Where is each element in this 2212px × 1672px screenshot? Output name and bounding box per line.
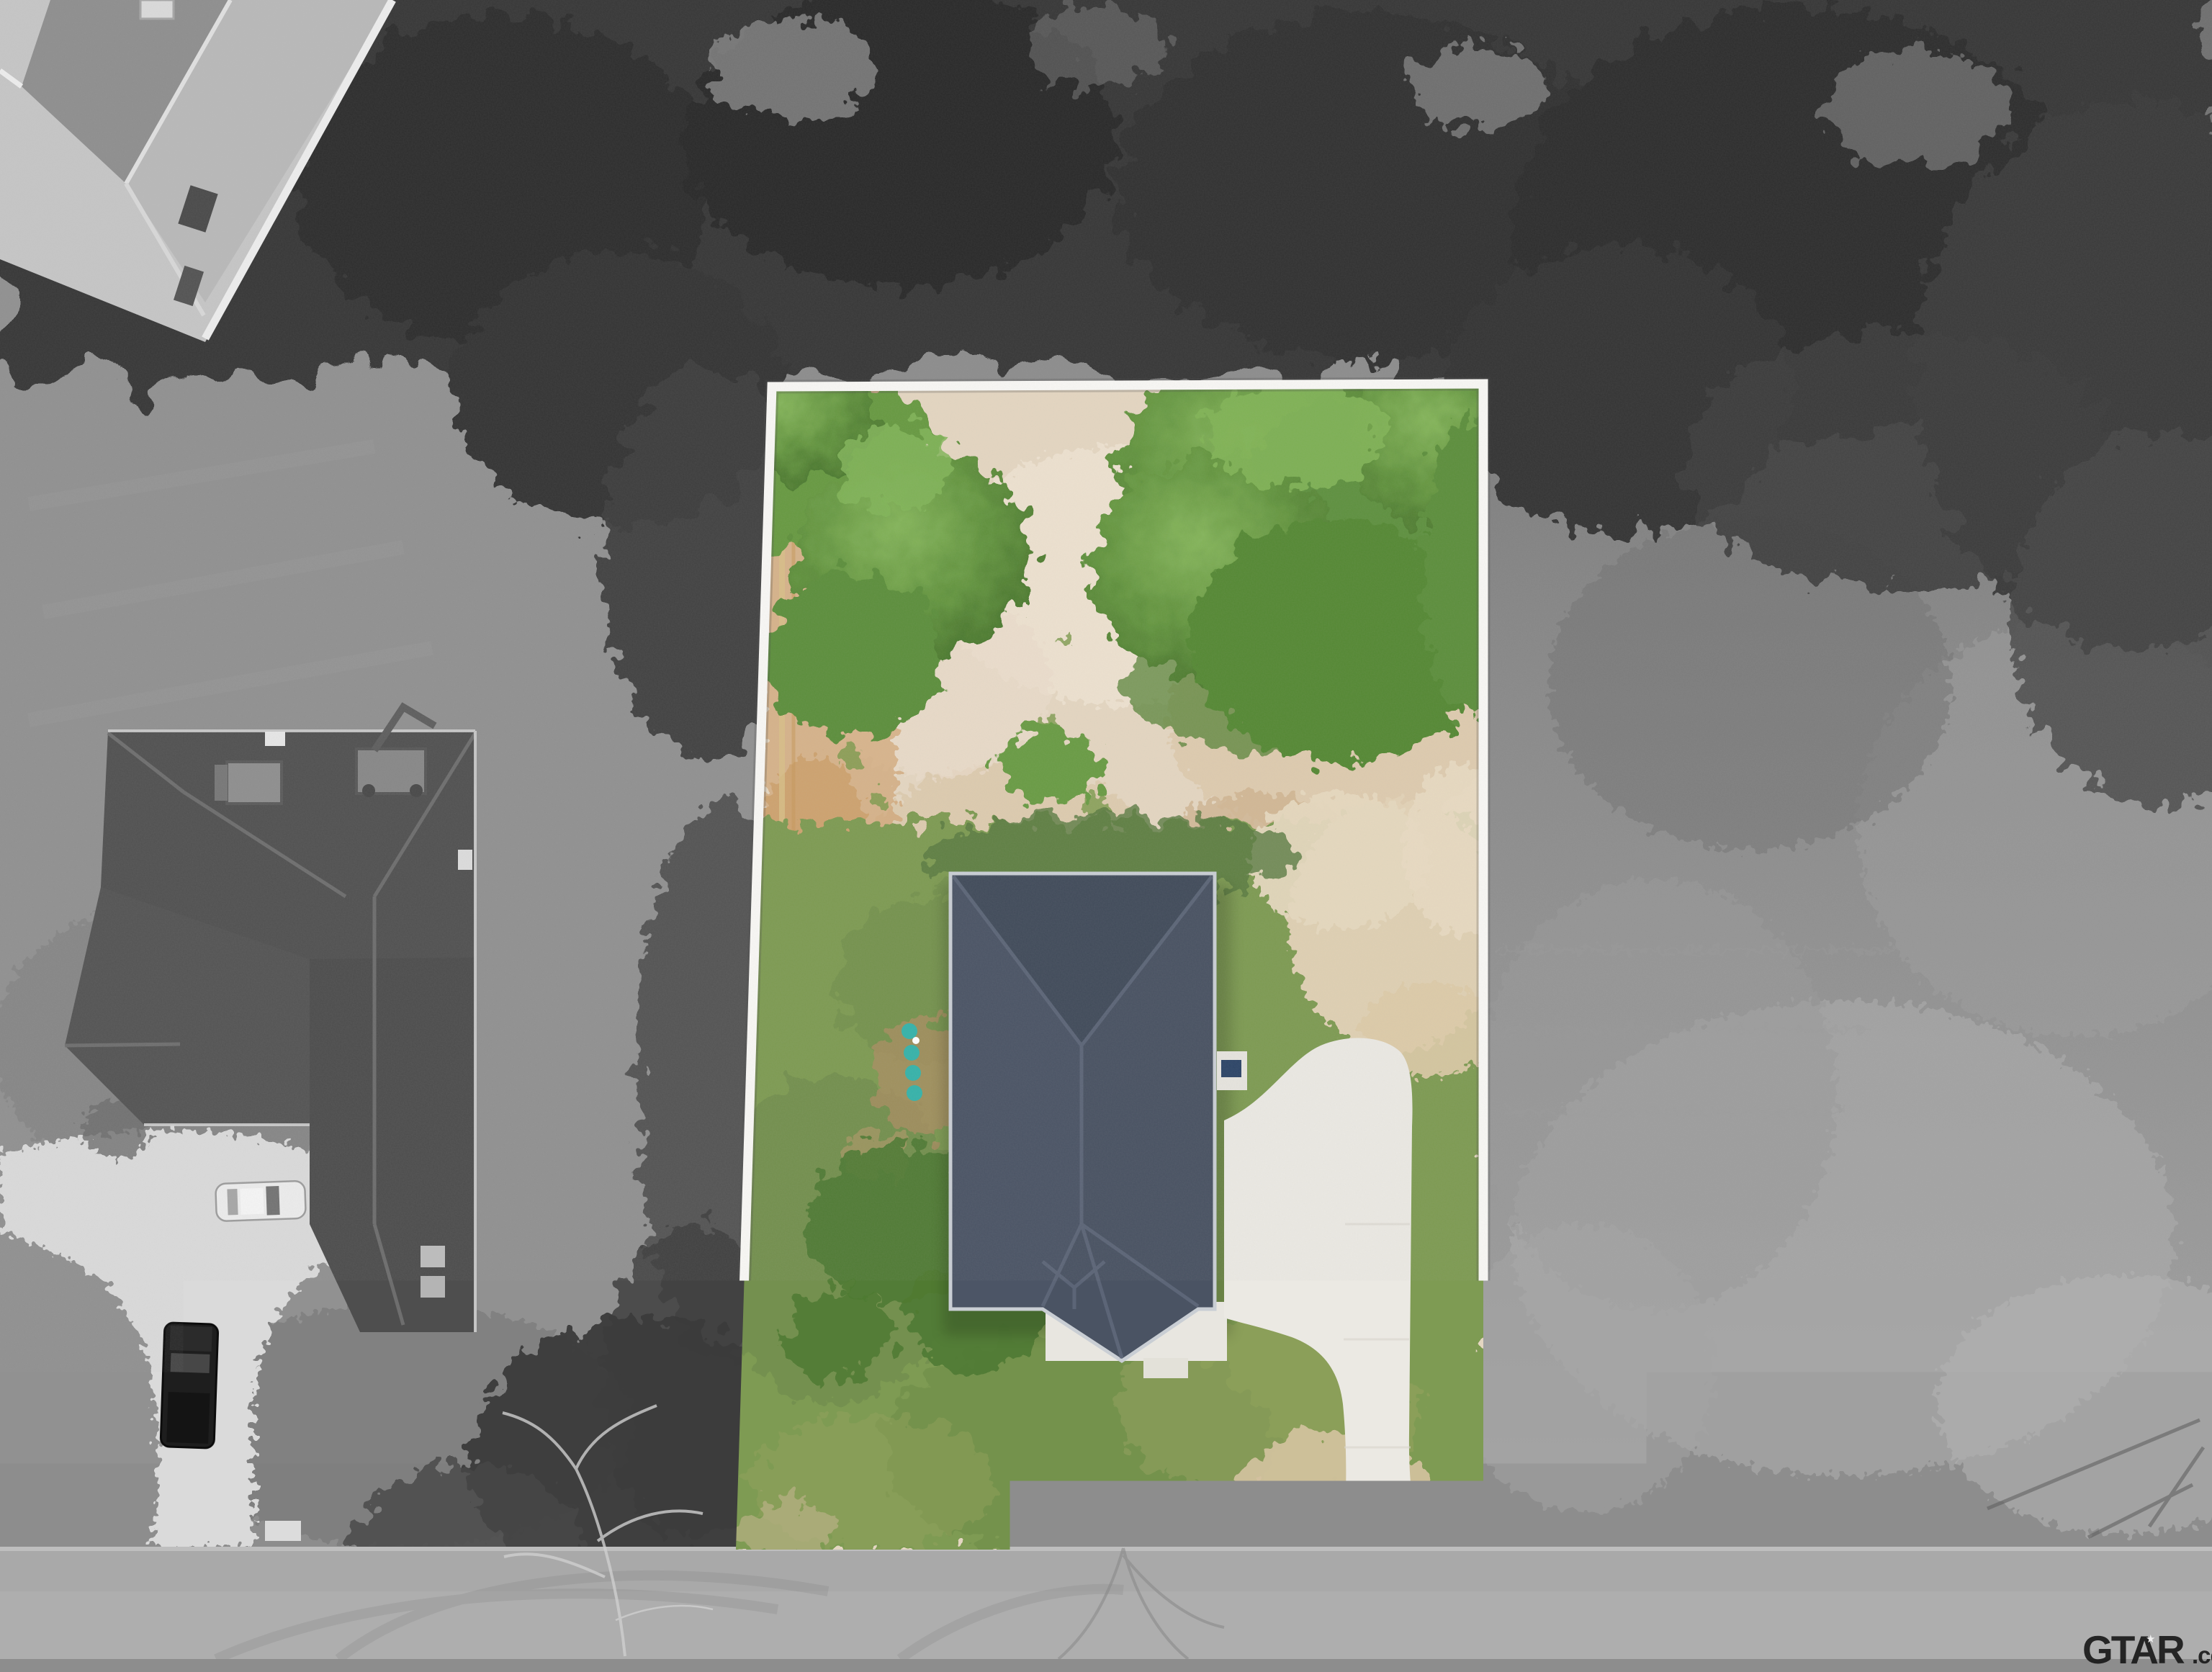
texas-star-icon: ★ [2146,1634,2155,1645]
survey-disclaimer-text: Lot Lines Do Not Represent Official Surv… [16,1596,723,1635]
culvert-neighbor [265,1521,301,1541]
patio-step [1143,1358,1188,1378]
rear-window [227,1189,238,1215]
chimney [140,0,174,19]
windshield [171,1353,210,1373]
utility-marker [902,1023,917,1039]
house [943,873,1247,1378]
windshield [266,1186,279,1215]
roof-vent [458,850,472,870]
utility-marker [904,1045,920,1061]
survey-pin [912,1037,920,1044]
aerial-lot-photo [0,0,2212,1659]
gtar-logo-tld: .com [2192,1642,2212,1668]
property-lot [706,349,1530,1563]
truck-bed [166,1392,210,1444]
white-sedan [215,1181,306,1221]
gtar-watermark: GTAR ★ .com [2082,1630,2212,1670]
hood [170,1326,212,1352]
culvert [1233,1492,1266,1531]
aerial-photo-canvas [0,0,2212,1659]
utility-marker [905,1065,921,1081]
ac-unit-neighbor [421,1246,445,1267]
gtar-logo-text: GTAR ★ [2082,1627,2192,1672]
ac-unit [1221,1060,1241,1077]
utility-marker [907,1085,922,1101]
ac-unit-neighbor [421,1276,445,1298]
black-pickup-truck [161,1323,218,1448]
roof-vent [265,732,285,746]
